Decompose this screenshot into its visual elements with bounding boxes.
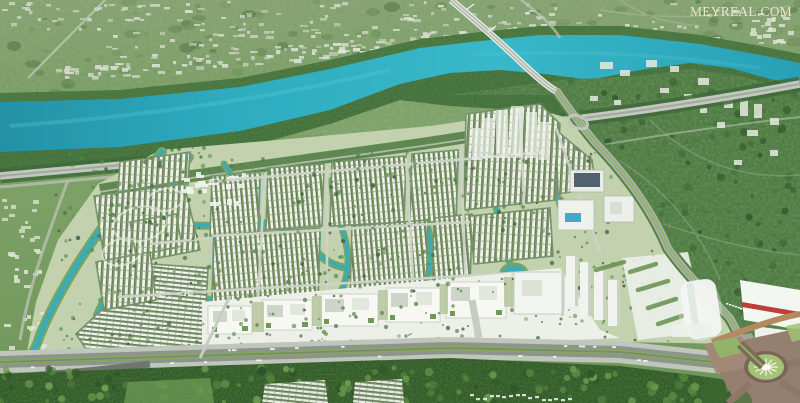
svg-text:MEYREAL.COM: MEYREAL.COM (690, 4, 792, 19)
